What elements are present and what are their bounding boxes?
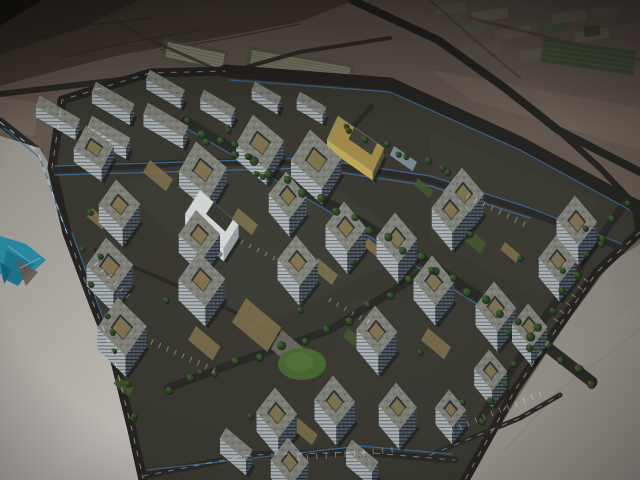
masterplan-3d-scene	[0, 0, 640, 480]
light-overlay	[0, 0, 640, 480]
render-viewport[interactable]	[0, 0, 640, 480]
